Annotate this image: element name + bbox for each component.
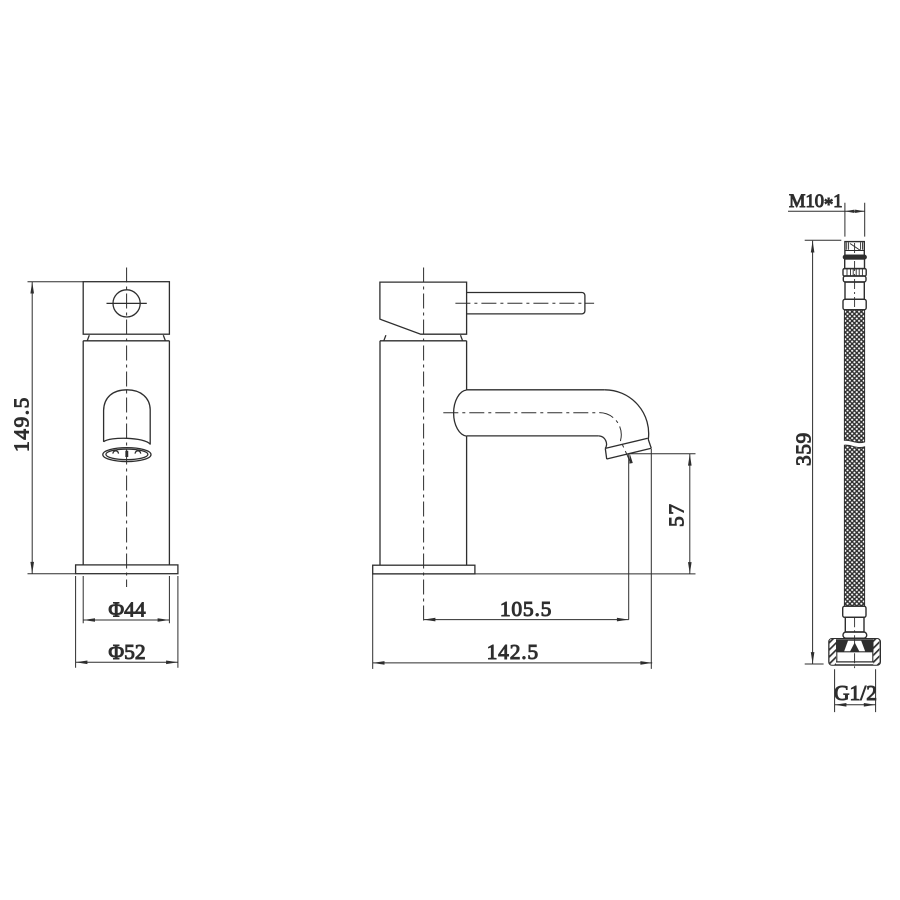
svg-text:G1/2: G1/2 [834, 681, 877, 705]
svg-text:105.5: 105.5 [500, 597, 552, 621]
svg-text:142.5: 142.5 [487, 640, 539, 664]
svg-text:149.5: 149.5 [10, 396, 34, 452]
svg-text:Φ44: Φ44 [108, 598, 145, 622]
svg-text:57: 57 [665, 503, 689, 528]
svg-text:359: 359 [792, 432, 816, 466]
svg-text:Φ52: Φ52 [108, 640, 145, 664]
svg-text:M10*1: M10*1 [789, 192, 842, 216]
